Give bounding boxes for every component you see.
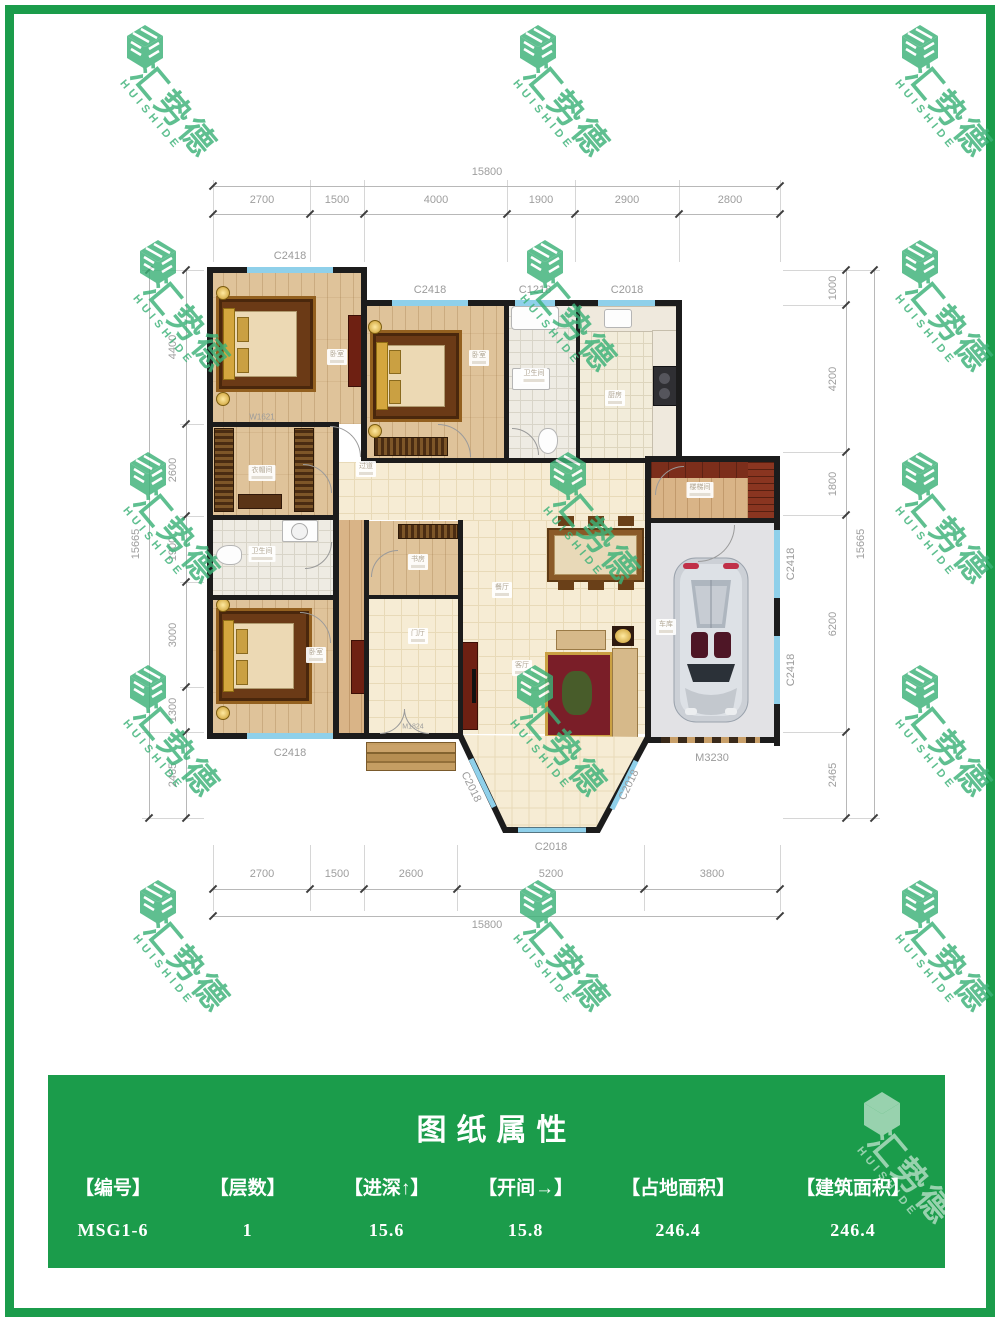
bed-bedroom3 — [216, 608, 312, 704]
window-label-bed3: C2418 — [274, 747, 306, 759]
dim-bottom-seg-5: 3800 — [700, 868, 724, 880]
bedroom2-wardrobe — [374, 437, 448, 456]
dim-line-bottom-segments — [213, 889, 780, 890]
kitchen-window — [598, 300, 655, 306]
dim-left-seg-1: 4400 — [167, 335, 179, 359]
kitchen-stove — [653, 366, 677, 406]
cloakroom-wardrobe-left — [214, 428, 234, 512]
sofa-top — [556, 630, 606, 650]
room-label-bathroom2: 卫生间 — [249, 546, 276, 562]
window-label-bed1: C2418 — [274, 250, 306, 262]
living-rug — [545, 652, 613, 738]
dim-line-right-total — [874, 270, 875, 818]
garage-door-opening — [661, 737, 760, 743]
title-block-title: 图纸属性 — [48, 1075, 945, 1149]
garage-right-window-lower — [774, 636, 780, 704]
window-label-cloak: W1621 — [249, 413, 274, 422]
dim-line-left-total — [149, 270, 150, 818]
sofa-long — [612, 648, 638, 738]
dim-top-seg-3: 4000 — [424, 194, 448, 206]
dim-left-seg-5: 1300 — [167, 698, 179, 722]
stairs-right — [748, 462, 774, 518]
room-label-bedroom3: 卧室 — [306, 647, 326, 663]
bedroom2-window — [392, 300, 468, 306]
room-label-foyer: 门厅 — [408, 628, 428, 644]
dim-line-right-segments — [846, 270, 847, 818]
dim-top-seg-4: 1900 — [529, 194, 553, 206]
room-label-hallway: 过道 — [356, 461, 376, 477]
header-cengshu: 【层数】 — [178, 1173, 317, 1200]
dim-right-total: 15665 — [855, 529, 867, 560]
dim-right-seg-4: 6200 — [827, 612, 839, 636]
bay-window — [408, 727, 654, 849]
corridor-floor — [337, 520, 365, 734]
toilet-bathroom2 — [216, 545, 242, 565]
dining-chair — [618, 516, 634, 526]
value-kaijian: 15.8 — [456, 1220, 595, 1241]
dining-chair — [558, 580, 574, 590]
dim-line-top-total — [213, 186, 780, 187]
dim-top-seg-6: 2800 — [718, 194, 742, 206]
car — [668, 556, 754, 724]
bed-bedroom2 — [370, 330, 462, 422]
title-block-headers: 【编号】MSG1-6 【层数】1 【进深↑】15.6 【开间→】15.8 【占地… — [48, 1173, 945, 1241]
dim-bottom-seg-3: 2600 — [399, 868, 423, 880]
window-label-bath1: C1218 — [519, 284, 551, 296]
bathroom1-window — [515, 300, 555, 306]
bedroom3-window — [247, 733, 333, 739]
dim-bottom-total: 15800 — [472, 919, 503, 931]
window-label-garage-upper: C2418 — [785, 548, 797, 580]
value-jianzhu: 246.4 — [761, 1220, 945, 1241]
dim-right-seg-1: 1000 — [827, 276, 839, 300]
dining-chair — [588, 580, 604, 590]
study-bookshelf — [398, 524, 458, 539]
header-bianhao: 【编号】 — [48, 1173, 178, 1200]
room-label-bedroom2: 卧室 — [469, 350, 489, 366]
dim-top-seg-1: 2700 — [250, 194, 274, 206]
window-label-bay-bottom: C2018 — [535, 841, 567, 853]
title-block: 图纸属性 【编号】MSG1-6 【层数】1 【进深↑】15.6 【开间→】15.… — [48, 1075, 945, 1268]
dim-right-seg-3: 1800 — [827, 472, 839, 496]
room-label-stairs: 楼梯间 — [687, 482, 714, 498]
bed-bedroom1 — [216, 296, 316, 392]
window-label-garage-lower: C2418 — [785, 654, 797, 686]
dim-left-seg-2: 2600 — [167, 458, 179, 482]
side-table — [612, 626, 634, 646]
bedside-lamp — [368, 320, 382, 334]
dim-bottom-seg-4: 5200 — [539, 868, 563, 880]
room-label-living: 客厅 — [512, 660, 532, 676]
bedside-lamp — [216, 706, 230, 720]
bedside-lamp — [216, 286, 230, 300]
room-label-kitchen: 厨房 — [605, 390, 625, 406]
room-label-garage: 车库 — [656, 619, 676, 635]
tv-cabinet — [461, 642, 478, 730]
window-label-kitchen: C2018 — [611, 284, 643, 296]
bedside-lamp — [216, 598, 230, 612]
door-label-entry: M1824 — [402, 724, 423, 731]
toilet-bathroom1 — [538, 428, 558, 454]
floor-plan-page: 15800 2700 1500 4000 1900 2900 2800 2700… — [0, 0, 1000, 1322]
value-zhandi: 246.4 — [595, 1220, 761, 1241]
dim-bottom-seg-2: 1500 — [325, 868, 349, 880]
hallway-floor — [337, 462, 645, 520]
door-label-garage: M3230 — [695, 752, 729, 764]
bedside-lamp — [216, 392, 230, 406]
value-cengshu: 1 — [178, 1220, 317, 1241]
dim-top-total: 15800 — [472, 166, 503, 178]
dim-left-total: 15665 — [130, 529, 142, 560]
bathroom2-vanity — [282, 520, 318, 542]
dim-left-seg-4: 3000 — [167, 623, 179, 647]
dim-top-seg-2: 1500 — [325, 194, 349, 206]
kitchen-sink — [604, 309, 632, 328]
dim-top-seg-5: 2900 — [615, 194, 639, 206]
cloakroom-dresser — [238, 494, 282, 509]
value-jinshen: 15.6 — [317, 1220, 456, 1241]
room-label-cloakroom: 衣帽间 — [249, 465, 276, 481]
dining-chair — [618, 580, 634, 590]
bedside-lamp — [368, 424, 382, 438]
dim-left-seg-6: 2465 — [167, 763, 179, 787]
bedroom1-wardrobe — [348, 315, 362, 387]
room-label-bedroom1: 卧室 — [327, 349, 347, 365]
dining-table — [547, 528, 644, 582]
garage-right-window-upper — [774, 530, 780, 598]
room-label-dining: 餐厅 — [492, 582, 512, 598]
header-jinshen: 【进深↑】 — [317, 1173, 456, 1200]
dining-chair — [558, 516, 574, 526]
window-label-bed2: C2418 — [414, 284, 446, 296]
dim-right-seg-2: 4200 — [827, 367, 839, 391]
dim-line-left-segments — [186, 270, 187, 818]
room-label-study: 书房 — [408, 554, 428, 570]
dim-line-top-segments — [213, 214, 780, 215]
dining-chair — [588, 516, 604, 526]
header-kaijian: 【开间→】 — [456, 1173, 595, 1200]
header-zhandi: 【占地面积】 — [595, 1173, 761, 1200]
dim-right-seg-5: 2465 — [827, 763, 839, 787]
bathtub — [511, 306, 559, 330]
bedroom1-window — [247, 267, 333, 273]
dim-left-seg-3: 1900 — [167, 537, 179, 561]
header-jianzhu: 【建筑面积】 — [761, 1173, 945, 1200]
dim-bottom-seg-1: 2700 — [250, 868, 274, 880]
room-label-bathroom1: 卫生间 — [521, 368, 548, 384]
dim-line-bottom-total — [213, 916, 780, 917]
value-bianhao: MSG1-6 — [48, 1220, 178, 1241]
